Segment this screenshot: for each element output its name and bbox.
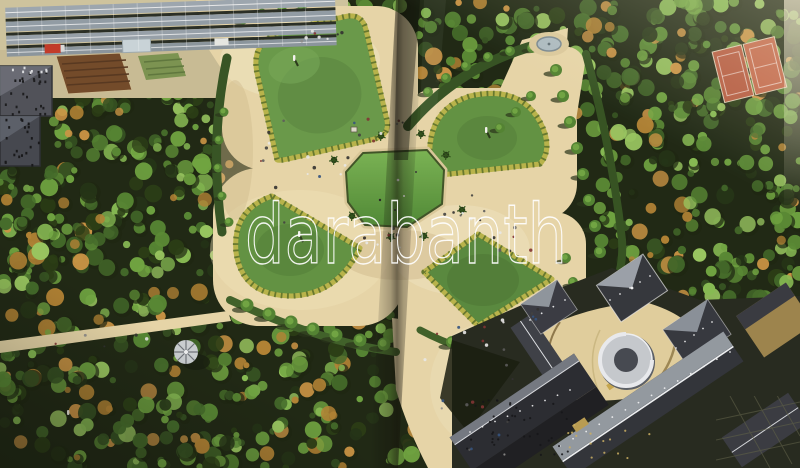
aerial-photo-luxembourg-gardens: darabanth <box>0 0 800 468</box>
book-spread-photo: darabanth <box>0 0 800 468</box>
watermark-text: darabanth <box>245 188 567 283</box>
